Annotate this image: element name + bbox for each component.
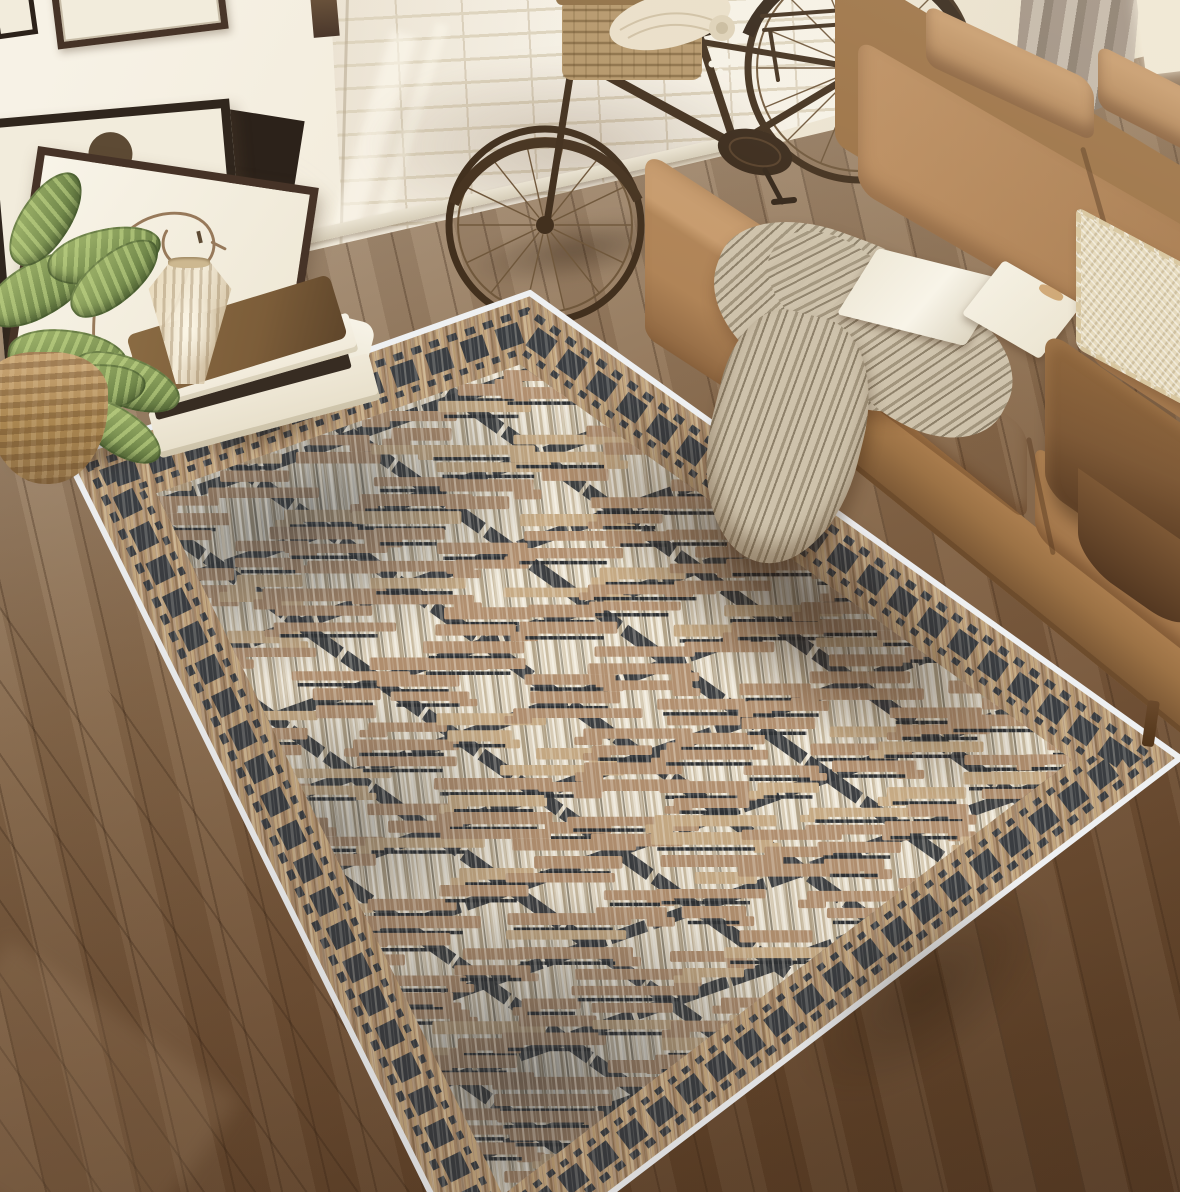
vase-lip xyxy=(168,257,210,268)
living-room-photo xyxy=(0,0,1180,1192)
